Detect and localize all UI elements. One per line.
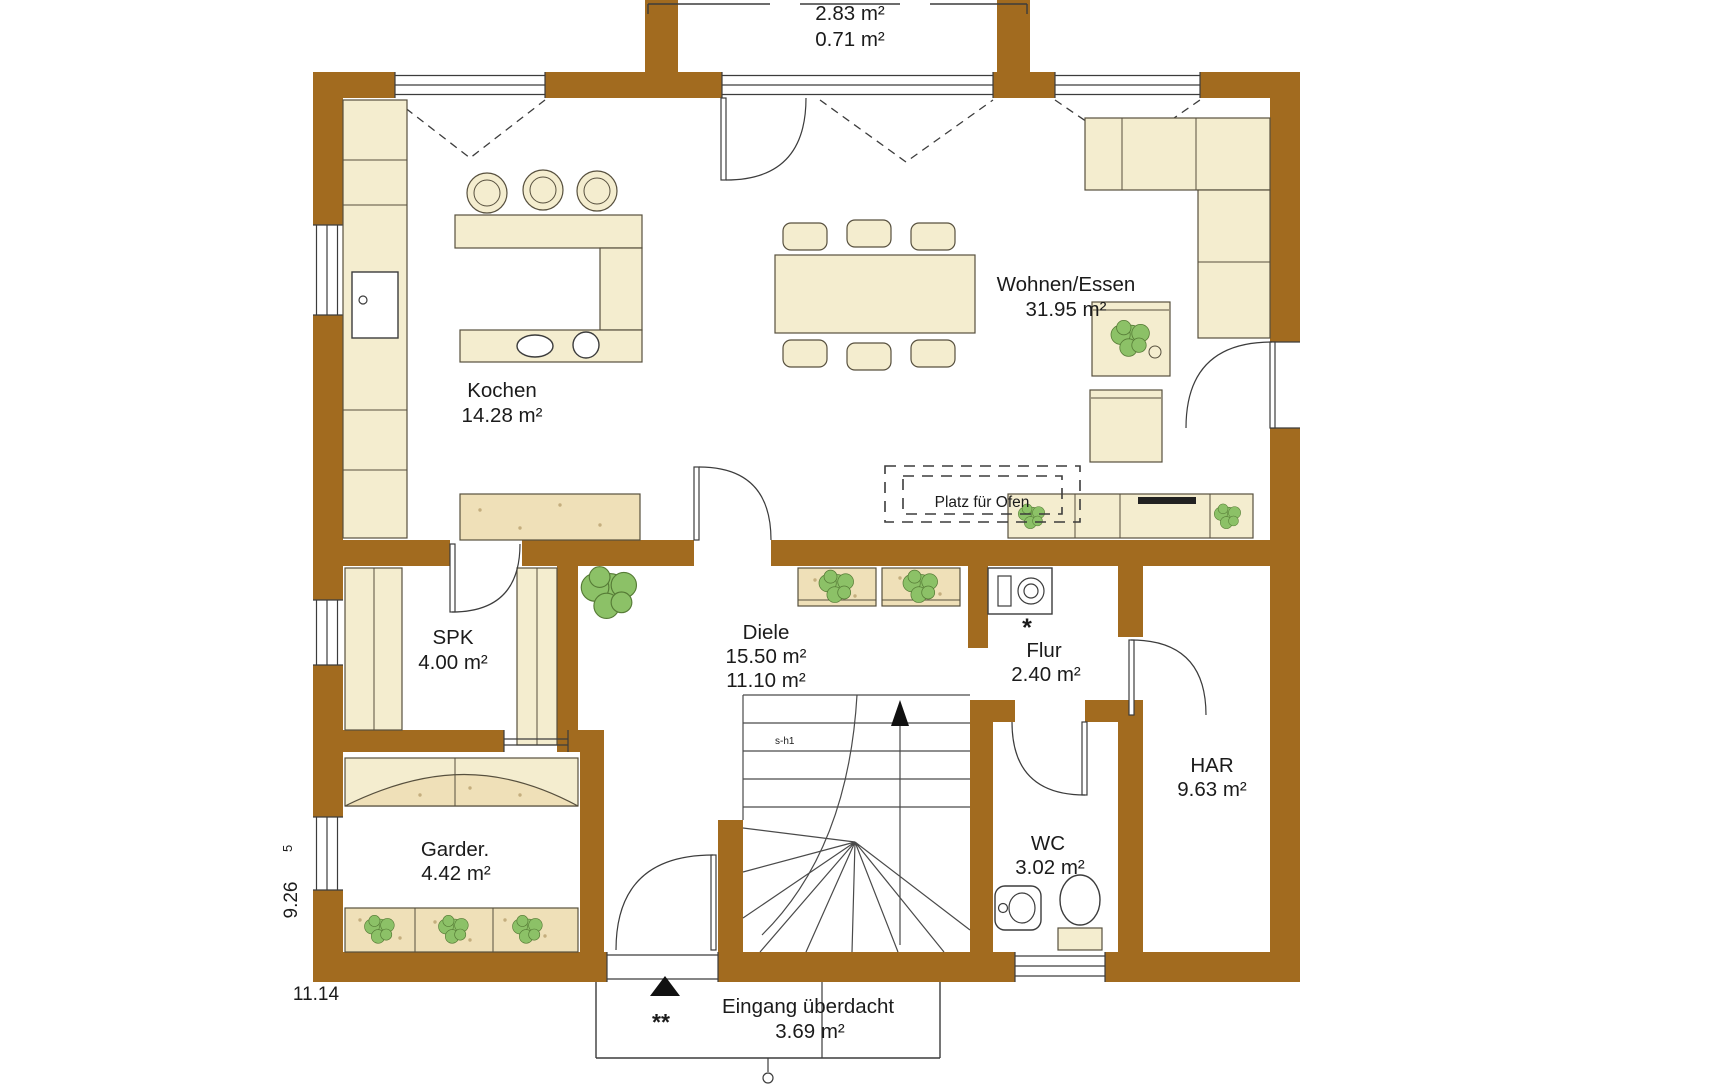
sofa-right — [1198, 190, 1270, 338]
ter­race-area-2: 0.71 m² — [815, 28, 885, 51]
sink-icon — [517, 335, 553, 357]
terrace-pillar-left — [645, 0, 678, 98]
dimension-width: 11.14 — [293, 984, 340, 1005]
door-wc — [1012, 722, 1087, 795]
washbasin-icon — [995, 886, 1041, 930]
stair-code-label: s-h1 — [775, 736, 795, 747]
window-essen-top — [722, 72, 993, 98]
room-label-eingang: Eingang überdacht — [722, 995, 894, 1018]
casement-mark-kochen — [395, 100, 545, 158]
floor-plan: 2.83 m² 0.71 m² Wohnen/Essen 31.95 m² Ko… — [0, 0, 1720, 1086]
dimension-height: 9.26 — [281, 882, 302, 919]
room-area-wohnen: 31.95 m² — [1026, 298, 1107, 321]
chair-icon — [911, 340, 955, 367]
terrace-pillar-right — [997, 0, 1030, 98]
door-wohnen-right — [1186, 342, 1300, 428]
stair-direction-arrow — [891, 700, 909, 945]
room-label-flur: Flur — [1026, 639, 1061, 662]
room-area-wc: 3.02 m² — [1015, 856, 1085, 879]
plant-icon — [581, 567, 636, 619]
kitchen-sink — [352, 272, 398, 338]
door-spk — [450, 544, 520, 612]
dining-table — [775, 255, 975, 333]
room-area-diele-1: 15.50 m² — [726, 645, 807, 668]
room-area-garderobe: 4.42 m² — [421, 862, 491, 885]
chair-icon — [847, 343, 891, 370]
window-kochen-left — [313, 225, 343, 315]
room-area-diele-2: 11.10 m² — [726, 669, 806, 692]
toilet-icon — [1060, 875, 1100, 925]
barstool-icon — [467, 173, 507, 213]
window-wohnen-top — [1055, 72, 1200, 98]
room-area-har: 9.63 m² — [1177, 778, 1247, 801]
kitchen-lower-cabinet — [460, 494, 640, 540]
kitchen-island-leg — [600, 248, 642, 330]
terrace-area-1: 2.83 m² — [815, 2, 885, 25]
dimension-height-sub: 5 — [280, 845, 295, 852]
window-spk-left — [313, 600, 343, 665]
room-label-har: HAR — [1190, 754, 1233, 777]
window-garderobe-left — [313, 817, 343, 890]
door-kochen-diele — [694, 467, 771, 540]
ottoman — [1090, 390, 1162, 462]
tv-icon — [1138, 497, 1196, 504]
eingang-marker: ** — [652, 1009, 670, 1035]
flur-marker: * — [1022, 614, 1032, 642]
chair-icon — [783, 340, 827, 367]
chair-icon — [911, 223, 955, 250]
door-terrace-top — [721, 98, 806, 180]
chair-icon — [847, 220, 891, 247]
room-label-kochen: Kochen — [467, 379, 537, 402]
porch-marker-icon — [763, 1073, 773, 1083]
room-label-diele: Diele — [743, 621, 790, 644]
barstool-icon — [577, 171, 617, 211]
chair-icon — [783, 223, 827, 250]
casement-mark-essen — [820, 100, 993, 162]
ofen-label: Platz für Ofen — [935, 494, 1030, 511]
floor-plan-drawing: 2.83 m² 0.71 m² Wohnen/Essen 31.95 m² Ko… — [0, 0, 1720, 1086]
staircase — [743, 695, 970, 952]
toilet-cistern — [1058, 928, 1102, 950]
room-label-wohnen: Wohnen/Essen — [997, 273, 1136, 296]
room-area-kochen: 14.28 m² — [462, 404, 543, 427]
cooktop-icon — [573, 332, 599, 358]
washing-machine-icon — [988, 568, 1052, 614]
room-area-flur: 2.40 m² — [1011, 663, 1081, 686]
room-area-eingang: 3.69 m² — [775, 1020, 845, 1043]
room-area-spk: 4.00 m² — [418, 651, 488, 674]
sofa-top — [1085, 118, 1270, 190]
door-entrance — [607, 855, 718, 996]
room-label-wc: WC — [1031, 832, 1065, 855]
barstool-icon — [523, 170, 563, 210]
room-label-garderobe: Garder. — [421, 838, 489, 861]
window-wc-bottom — [1015, 952, 1105, 982]
room-label-spk: SPK — [432, 626, 473, 649]
kitchen-island — [455, 215, 642, 248]
window-kochen-top — [395, 72, 545, 98]
